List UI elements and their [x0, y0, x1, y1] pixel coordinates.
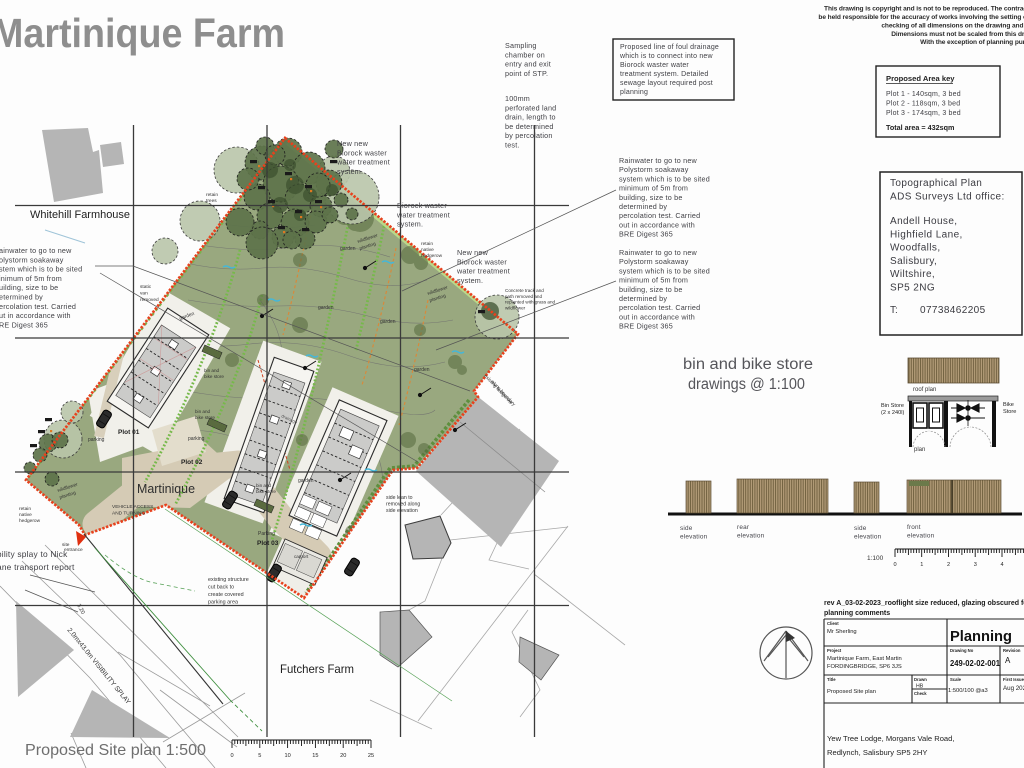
svg-text:garden: garden: [414, 367, 430, 373]
svg-text:249-02-02-001: 249-02-02-001: [950, 659, 1000, 668]
svg-text:parking: parking: [88, 437, 105, 443]
svg-text:Proposed Site plan 1:500: Proposed Site plan 1:500: [25, 742, 206, 759]
svg-text:07738462205: 07738462205: [920, 305, 986, 316]
svg-text:10: 10: [284, 753, 290, 759]
svg-text:Futchers Farm: Futchers Farm: [280, 662, 354, 676]
svg-text:Whitehill Farmhouse: Whitehill Farmhouse: [30, 209, 130, 221]
svg-text:Plot 1 - 140sqm, 3 bedPlot 2 -: Plot 1 - 140sqm, 3 bedPlot 2 - 118sqm, 3…: [886, 91, 961, 117]
svg-text:drawings @ 1:100: drawings @ 1:100: [688, 376, 805, 393]
svg-text:0: 0: [893, 562, 896, 568]
svg-text:Store: Store: [1003, 409, 1016, 415]
svg-text:garden: garden: [380, 319, 396, 325]
svg-text:garden: garden: [340, 246, 356, 252]
svg-text:Proposed Site plan: Proposed Site plan: [827, 689, 876, 695]
svg-text:bin and bike store: bin and bike store: [683, 356, 813, 373]
svg-text:1:100: 1:100: [867, 555, 884, 562]
svg-text:Yew Tree Lodge, Morgans Vale R: Yew Tree Lodge, Morgans Vale Road,: [827, 734, 955, 743]
svg-text:2: 2: [947, 562, 950, 568]
svg-text:25: 25: [368, 753, 374, 759]
svg-text:be held responsible for the ac: be held responsible for the accuracy of …: [818, 14, 1024, 21]
svg-text:checking of all dimensions on: checking of all dimensions on the drawin…: [881, 23, 1024, 30]
svg-text:carport: carport: [294, 554, 309, 559]
svg-text:Client: Client: [827, 621, 839, 626]
svg-text:5: 5: [258, 753, 261, 759]
svg-text:Redlynch, Salisbury SP5 2HY: Redlynch, Salisbury SP5 2HY: [827, 748, 927, 757]
svg-text:Scale: Scale: [950, 677, 962, 682]
svg-text:site: site: [62, 542, 70, 548]
svg-text:Aug 2022: Aug 2022: [1003, 685, 1024, 692]
svg-text:plan: plan: [914, 447, 925, 453]
svg-text:Revision: Revision: [1003, 648, 1021, 653]
svg-text:Plot 02: Plot 02: [181, 459, 203, 466]
svg-text:garden: garden: [298, 478, 314, 484]
svg-text:With the exception of planning: With the exception of planning purpo: [920, 39, 1024, 46]
svg-text:FORDINGBRIDGE, SP6 3JS: FORDINGBRIDGE, SP6 3JS: [827, 664, 902, 670]
svg-text:planning comments: planning comments: [824, 610, 890, 617]
svg-text:0: 0: [230, 753, 233, 759]
svg-text:Martinique: Martinique: [137, 482, 195, 496]
svg-text:Proposed Area key: Proposed Area key: [886, 74, 955, 83]
svg-text:roof plan: roof plan: [913, 387, 936, 393]
svg-text:Bike: Bike: [1003, 402, 1014, 408]
svg-text:First Issue: First Issue: [1003, 677, 1024, 682]
svg-text:(2 x 240l): (2 x 240l): [881, 410, 904, 416]
svg-text:Drawn: Drawn: [914, 677, 927, 682]
svg-text:Parking: Parking: [258, 531, 275, 537]
svg-text:Title: Title: [827, 677, 836, 682]
svg-text:garden: garden: [318, 305, 334, 311]
svg-text:Martinique Farm: Martinique Farm: [0, 10, 285, 56]
svg-text:Project: Project: [827, 648, 842, 653]
svg-text:Total area = 432sqm: Total area = 432sqm: [886, 123, 954, 132]
svg-text:15: 15: [312, 753, 318, 759]
svg-text:Martinique Farm, East Martin: Martinique Farm, East Martin: [827, 656, 902, 662]
svg-text:Dimensions must not be scaled: Dimensions must not be scaled from this …: [891, 31, 1024, 38]
svg-text:HB: HB: [916, 684, 924, 690]
svg-text:1: 1: [920, 562, 923, 568]
svg-text:rev A_03-02-2023_rooflight siz: rev A_03-02-2023_rooflight size reduced,…: [824, 600, 1024, 607]
svg-text:3: 3: [974, 562, 977, 568]
svg-text:4: 4: [1000, 562, 1003, 568]
svg-text:parking: parking: [188, 436, 205, 442]
svg-text:A: A: [1005, 656, 1011, 665]
svg-text:T:: T:: [890, 305, 898, 316]
svg-text:Mr Sherling: Mr Sherling: [827, 629, 857, 635]
svg-text:This drawing is copyright and: This drawing is copyright and is not to …: [824, 6, 1024, 13]
svg-text:20: 20: [340, 753, 346, 759]
svg-text:Check: Check: [914, 691, 927, 696]
svg-text:1:500/100 @a3: 1:500/100 @a3: [948, 688, 988, 694]
svg-text:Bin Store: Bin Store: [881, 403, 904, 409]
svg-text:Plot 01: Plot 01: [118, 429, 140, 436]
svg-text:Drawing No: Drawing No: [950, 648, 974, 653]
svg-text:Plot 03: Plot 03: [257, 540, 279, 547]
svg-text:Planning: Planning: [950, 629, 1012, 645]
